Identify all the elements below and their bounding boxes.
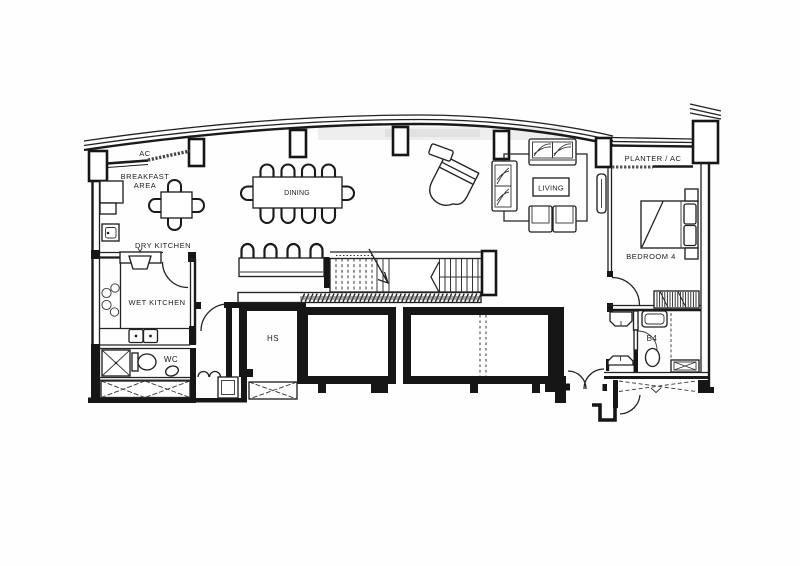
svg-text:AREA: AREA bbox=[134, 181, 156, 190]
svg-text:HS: HS bbox=[267, 334, 279, 343]
svg-text:DRY KITCHEN: DRY KITCHEN bbox=[135, 241, 191, 250]
svg-text:WET KITCHEN: WET KITCHEN bbox=[128, 298, 185, 307]
svg-text:BEDROOM 4: BEDROOM 4 bbox=[626, 252, 676, 261]
svg-text:WC: WC bbox=[164, 355, 178, 364]
svg-text:B4: B4 bbox=[647, 334, 658, 343]
svg-text:AC: AC bbox=[139, 149, 151, 158]
svg-text:BREAKFAST: BREAKFAST bbox=[121, 172, 170, 181]
svg-text:DINING: DINING bbox=[284, 190, 310, 197]
svg-text:LIVING: LIVING bbox=[538, 184, 564, 193]
svg-text:PLANTER / AC: PLANTER / AC bbox=[625, 154, 682, 163]
